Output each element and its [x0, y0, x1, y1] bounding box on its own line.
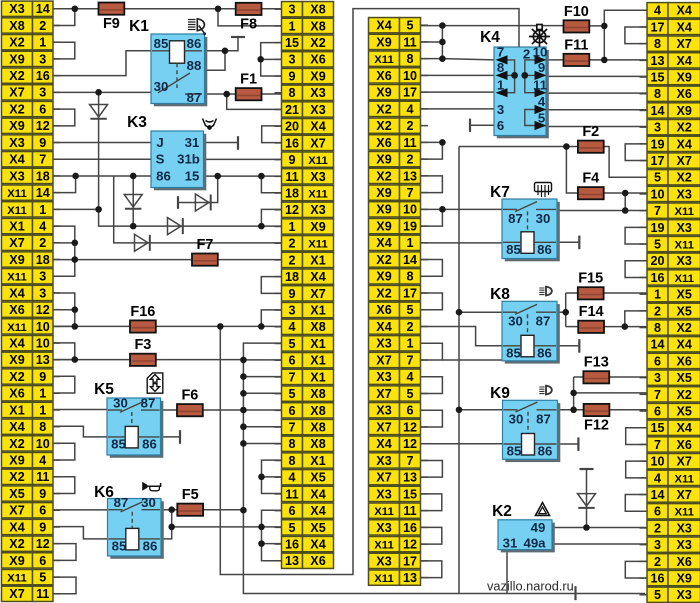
svg-text:X5: X5 [676, 404, 691, 418]
svg-text:19: 19 [650, 221, 664, 235]
svg-text:7: 7 [654, 438, 661, 452]
svg-text:K8: K8 [490, 286, 510, 303]
svg-text:X7: X7 [376, 420, 391, 434]
svg-text:X4: X4 [676, 338, 691, 352]
svg-text:9: 9 [39, 136, 46, 150]
svg-text:30: 30 [509, 411, 524, 426]
svg-text:87: 87 [114, 495, 129, 510]
svg-text:9: 9 [39, 487, 46, 501]
svg-text:X7: X7 [376, 387, 391, 401]
svg-text:2: 2 [39, 19, 46, 33]
svg-text:88: 88 [187, 58, 202, 73]
svg-text:3: 3 [39, 52, 46, 66]
svg-text:4: 4 [406, 370, 413, 384]
svg-text:X3: X3 [676, 521, 691, 535]
svg-text:X3: X3 [676, 221, 691, 235]
svg-text:2: 2 [406, 119, 413, 133]
svg-text:F3: F3 [134, 337, 151, 353]
svg-text:2: 2 [654, 304, 661, 318]
svg-text:8: 8 [654, 321, 661, 335]
svg-text:87: 87 [508, 211, 523, 226]
svg-text:7: 7 [654, 204, 661, 218]
svg-text:X7: X7 [9, 86, 24, 100]
svg-text:X9: X9 [676, 104, 691, 118]
svg-text:3: 3 [39, 86, 46, 100]
svg-text:10: 10 [403, 69, 417, 83]
svg-text:9: 9 [288, 153, 295, 167]
svg-text:F15: F15 [578, 271, 603, 287]
svg-text:X6: X6 [9, 303, 24, 317]
svg-text:X4: X4 [9, 286, 24, 300]
svg-text:X11: X11 [374, 506, 393, 518]
svg-text:X1: X1 [310, 354, 325, 368]
svg-text:6: 6 [497, 118, 504, 133]
svg-text:6: 6 [288, 404, 295, 418]
svg-text:13: 13 [403, 471, 417, 485]
svg-text:X4: X4 [376, 236, 391, 250]
svg-text:85: 85 [506, 242, 521, 257]
svg-text:X11: X11 [7, 272, 26, 284]
svg-text:X2: X2 [676, 121, 691, 135]
svg-text:6: 6 [39, 554, 46, 568]
svg-text:8: 8 [654, 87, 661, 101]
svg-text:5: 5 [406, 303, 413, 317]
svg-text:15: 15 [185, 169, 200, 184]
svg-text:X11: X11 [7, 573, 26, 585]
svg-text:85: 85 [112, 538, 127, 553]
svg-text:X3: X3 [376, 337, 391, 351]
svg-text:5: 5 [654, 171, 661, 185]
svg-text:6: 6 [39, 102, 46, 116]
svg-text:X2: X2 [9, 102, 24, 116]
svg-text:49a: 49a [523, 535, 546, 550]
svg-text:X9: X9 [676, 70, 691, 84]
svg-text:8: 8 [654, 37, 661, 51]
svg-text:8: 8 [39, 420, 46, 434]
svg-text:X9: X9 [376, 219, 391, 233]
svg-text:2: 2 [288, 253, 295, 267]
svg-text:5: 5 [654, 237, 661, 251]
svg-text:30: 30 [154, 79, 169, 94]
svg-text:X7: X7 [310, 136, 325, 150]
svg-text:X6: X6 [376, 136, 391, 150]
svg-text:X4: X4 [310, 487, 325, 501]
svg-text:X11: X11 [7, 188, 26, 200]
svg-text:1: 1 [288, 220, 295, 234]
svg-text:20: 20 [650, 254, 664, 268]
svg-text:5: 5 [288, 387, 295, 401]
svg-text:X3: X3 [376, 487, 391, 501]
svg-text:1: 1 [39, 387, 46, 401]
svg-text:X3: X3 [310, 170, 325, 184]
svg-text:6: 6 [288, 354, 295, 368]
svg-text:X1: X1 [310, 253, 325, 267]
svg-text:5: 5 [538, 110, 545, 125]
svg-text:14: 14 [36, 186, 50, 200]
svg-text:X3: X3 [9, 169, 24, 183]
svg-text:X4: X4 [676, 4, 691, 18]
svg-text:X7: X7 [376, 471, 391, 485]
svg-text:9: 9 [39, 520, 46, 534]
svg-text:1: 1 [497, 77, 504, 92]
svg-text:3: 3 [288, 3, 295, 17]
svg-text:1: 1 [39, 403, 46, 417]
svg-text:86: 86 [143, 538, 158, 553]
svg-text:X2: X2 [376, 102, 391, 116]
svg-text:6: 6 [288, 504, 295, 518]
svg-text:X11: X11 [674, 206, 693, 218]
svg-text:X6: X6 [676, 87, 691, 101]
svg-text:F4: F4 [582, 171, 599, 187]
svg-text:6: 6 [654, 505, 661, 519]
svg-text:86: 86 [538, 444, 553, 459]
svg-text:87: 87 [536, 411, 551, 426]
svg-text:F6: F6 [181, 388, 198, 404]
svg-text:X3: X3 [310, 103, 325, 117]
svg-text:X9: X9 [9, 454, 24, 468]
svg-text:87: 87 [536, 314, 551, 329]
svg-text:13: 13 [285, 554, 299, 568]
svg-text:12: 12 [403, 420, 417, 434]
svg-text:12: 12 [36, 537, 50, 551]
svg-text:5: 5 [288, 337, 295, 351]
svg-text:20: 20 [285, 120, 299, 134]
svg-text:14: 14 [650, 338, 664, 352]
svg-text:13: 13 [36, 353, 50, 367]
svg-text:12: 12 [285, 203, 299, 217]
svg-text:17: 17 [403, 86, 417, 100]
svg-text:7: 7 [497, 45, 504, 60]
svg-text:F14: F14 [579, 304, 604, 320]
svg-text:X3: X3 [310, 86, 325, 100]
svg-text:13: 13 [650, 54, 664, 68]
svg-text:S: S [156, 152, 165, 167]
svg-text:X8: X8 [310, 3, 325, 17]
svg-text:4: 4 [288, 471, 295, 485]
svg-text:X9: X9 [376, 270, 391, 284]
svg-text:X2: X2 [9, 537, 24, 551]
svg-text:85: 85 [154, 36, 169, 51]
svg-text:X9: X9 [9, 52, 24, 66]
svg-text:X2: X2 [376, 253, 391, 267]
svg-text:12: 12 [36, 119, 50, 133]
svg-text:11: 11 [285, 487, 298, 501]
svg-text:15: 15 [650, 421, 664, 435]
svg-text:F12: F12 [584, 418, 609, 434]
svg-text:X5: X5 [676, 371, 691, 385]
svg-text:11: 11 [285, 170, 298, 184]
svg-text:18: 18 [285, 270, 299, 284]
svg-text:10: 10 [36, 437, 50, 451]
svg-text:14: 14 [403, 253, 417, 267]
svg-text:X6: X6 [676, 555, 691, 569]
svg-text:16: 16 [285, 136, 299, 150]
svg-text:12: 12 [36, 303, 50, 317]
svg-text:X4: X4 [310, 537, 325, 551]
svg-text:F5: F5 [182, 487, 199, 503]
svg-text:F9: F9 [103, 16, 120, 32]
svg-text:X11: X11 [308, 188, 327, 200]
svg-text:X6: X6 [9, 387, 24, 401]
svg-text:14: 14 [650, 488, 664, 502]
svg-text:14: 14 [36, 2, 50, 16]
svg-text:K6: K6 [94, 484, 114, 501]
svg-text:87: 87 [141, 396, 156, 411]
svg-text:X7: X7 [676, 488, 691, 502]
svg-text:X4: X4 [676, 54, 691, 68]
svg-text:49: 49 [531, 520, 546, 535]
svg-text:16: 16 [36, 69, 50, 83]
svg-text:X5: X5 [9, 487, 24, 501]
svg-text:X5: X5 [676, 288, 691, 302]
svg-text:X5: X5 [676, 304, 691, 318]
svg-text:2: 2 [406, 320, 413, 334]
svg-text:X11: X11 [374, 54, 393, 66]
svg-text:17: 17 [650, 20, 664, 34]
svg-text:5: 5 [406, 387, 413, 401]
svg-text:8: 8 [406, 52, 413, 66]
svg-text:19: 19 [403, 219, 417, 233]
svg-text:3: 3 [497, 102, 504, 117]
svg-text:6: 6 [39, 504, 46, 518]
svg-text:1: 1 [406, 236, 413, 250]
svg-text:X2: X2 [676, 388, 691, 402]
svg-text:11: 11 [36, 587, 49, 601]
svg-text:17: 17 [403, 286, 417, 300]
svg-text:16: 16 [403, 521, 417, 535]
svg-text:85: 85 [507, 444, 522, 459]
svg-text:7: 7 [654, 388, 661, 402]
svg-text:86: 86 [142, 436, 157, 451]
svg-text:F2: F2 [582, 124, 599, 140]
svg-text:X2: X2 [9, 437, 24, 451]
svg-text:2: 2 [406, 153, 413, 167]
svg-text:30: 30 [508, 314, 523, 329]
svg-text:14: 14 [650, 104, 664, 118]
svg-text:21: 21 [285, 103, 299, 117]
svg-text:X8: X8 [310, 19, 325, 33]
svg-text:10: 10 [650, 455, 664, 469]
svg-text:X11: X11 [7, 205, 26, 217]
svg-text:X8: X8 [9, 19, 24, 33]
svg-text:4: 4 [654, 471, 661, 485]
svg-text:86: 86 [156, 169, 171, 184]
svg-text:X7: X7 [676, 37, 691, 51]
svg-text:X1: X1 [310, 303, 325, 317]
svg-text:J: J [156, 135, 163, 150]
svg-text:X2: X2 [676, 321, 691, 335]
svg-text:X9: X9 [376, 186, 391, 200]
svg-text:3: 3 [39, 270, 46, 284]
svg-text:16: 16 [285, 537, 299, 551]
svg-text:X2: X2 [9, 470, 24, 484]
svg-text:X7: X7 [310, 287, 325, 301]
svg-text:85: 85 [506, 345, 521, 360]
svg-text:10: 10 [36, 336, 50, 350]
svg-text:X4: X4 [376, 19, 391, 33]
svg-text:F1: F1 [240, 72, 257, 88]
svg-text:8: 8 [406, 270, 413, 284]
svg-text:15: 15 [650, 70, 664, 84]
svg-text:12: 12 [403, 437, 417, 451]
svg-text:X2: X2 [376, 119, 391, 133]
svg-text:X7: X7 [9, 504, 24, 518]
svg-text:5: 5 [39, 571, 46, 585]
svg-text:3: 3 [288, 303, 295, 317]
svg-text:4: 4 [39, 454, 46, 468]
svg-text:4: 4 [538, 94, 546, 109]
svg-text:F8: F8 [240, 17, 257, 33]
svg-text:2: 2 [39, 236, 46, 250]
svg-text:X11: X11 [674, 273, 693, 285]
svg-text:X6: X6 [376, 303, 391, 317]
svg-text:5: 5 [288, 521, 295, 535]
svg-text:X2: X2 [9, 36, 24, 50]
svg-text:8: 8 [288, 437, 295, 451]
svg-text:X8: X8 [310, 404, 325, 418]
svg-text:6: 6 [654, 404, 661, 418]
svg-text:X4: X4 [310, 504, 325, 518]
svg-text:K4: K4 [480, 29, 500, 46]
svg-text:X8: X8 [310, 320, 325, 334]
svg-text:X6: X6 [676, 438, 691, 452]
svg-text:X9: X9 [9, 554, 24, 568]
svg-text:9: 9 [288, 69, 295, 83]
svg-text:30: 30 [536, 211, 551, 226]
svg-text:X6: X6 [676, 354, 691, 368]
svg-text:11: 11 [403, 136, 416, 150]
svg-text:1: 1 [654, 288, 661, 302]
svg-text:X9: X9 [376, 203, 391, 217]
svg-text:31: 31 [185, 135, 200, 150]
svg-text:X3: X3 [376, 404, 391, 418]
svg-text:X1: X1 [9, 219, 24, 233]
svg-text:X8: X8 [310, 387, 325, 401]
svg-text:7: 7 [288, 370, 295, 384]
svg-text:10: 10 [650, 187, 664, 201]
svg-text:F7: F7 [196, 237, 213, 253]
svg-text:X9: X9 [9, 253, 24, 267]
svg-text:X4: X4 [9, 336, 24, 350]
svg-text:7: 7 [406, 353, 413, 367]
svg-text:86: 86 [187, 36, 202, 51]
svg-text:13: 13 [403, 571, 417, 585]
svg-text:7: 7 [39, 153, 46, 167]
svg-text:5: 5 [406, 19, 413, 33]
svg-text:vazillo.narod.ru: vazillo.narod.ru [487, 579, 574, 594]
svg-text:X2: X2 [9, 69, 24, 83]
svg-text:X11: X11 [7, 322, 26, 334]
svg-text:K5: K5 [94, 381, 114, 398]
svg-text:17: 17 [650, 154, 664, 168]
svg-text:8: 8 [288, 86, 295, 100]
svg-text:X6: X6 [310, 53, 325, 67]
svg-text:X7: X7 [376, 353, 391, 367]
svg-text:X4: X4 [9, 520, 24, 534]
svg-text:X4: X4 [9, 420, 24, 434]
svg-text:30: 30 [113, 396, 128, 411]
svg-text:9: 9 [288, 287, 295, 301]
svg-text:X3: X3 [676, 538, 691, 552]
svg-text:6: 6 [654, 354, 661, 368]
svg-text:85: 85 [111, 436, 126, 451]
svg-text:X9: X9 [9, 119, 24, 133]
svg-text:X2: X2 [676, 171, 691, 185]
svg-text:87: 87 [187, 90, 202, 105]
svg-text:F13: F13 [584, 355, 609, 371]
svg-text:X11: X11 [674, 239, 693, 251]
svg-text:X4: X4 [376, 437, 391, 451]
svg-text:1: 1 [288, 19, 295, 33]
svg-text:X4: X4 [9, 153, 24, 167]
svg-text:13: 13 [403, 169, 417, 183]
svg-text:X5: X5 [310, 471, 325, 485]
svg-text:X11: X11 [308, 239, 327, 251]
svg-text:X7: X7 [676, 455, 691, 469]
svg-text:X3: X3 [376, 370, 391, 384]
svg-text:X3: X3 [676, 254, 691, 268]
svg-text:X4: X4 [376, 320, 391, 334]
svg-text:X9: X9 [310, 69, 325, 83]
svg-text:4: 4 [406, 102, 413, 116]
svg-text:X9: X9 [310, 220, 325, 234]
svg-text:X9: X9 [9, 353, 24, 367]
svg-text:X2: X2 [376, 169, 391, 183]
svg-text:31: 31 [503, 535, 518, 550]
svg-text:6: 6 [406, 404, 413, 418]
svg-text:X9: X9 [676, 571, 691, 585]
svg-text:X2: X2 [376, 286, 391, 300]
svg-text:X8: X8 [310, 420, 325, 434]
svg-text:X3: X3 [676, 588, 691, 602]
svg-text:11: 11 [403, 504, 416, 518]
svg-text:X4: X4 [676, 137, 691, 151]
svg-text:X3: X3 [376, 554, 391, 568]
svg-text:9: 9 [39, 370, 46, 384]
svg-text:18: 18 [36, 253, 50, 267]
svg-text:2: 2 [654, 521, 661, 535]
svg-text:X1: X1 [310, 337, 325, 351]
svg-text:11: 11 [533, 77, 547, 92]
svg-text:9: 9 [538, 60, 545, 75]
svg-text:3: 3 [654, 538, 661, 552]
svg-text:X7: X7 [9, 236, 24, 250]
svg-text:X11: X11 [308, 155, 327, 167]
svg-text:16: 16 [650, 271, 664, 285]
svg-text:X7: X7 [9, 587, 24, 601]
svg-text:15: 15 [403, 487, 417, 501]
svg-text:15: 15 [285, 36, 299, 50]
svg-text:X3: X3 [310, 203, 325, 217]
svg-text:1: 1 [406, 337, 413, 351]
svg-text:3: 3 [288, 53, 295, 67]
svg-text:K1: K1 [129, 18, 149, 35]
svg-text:16: 16 [650, 571, 664, 585]
svg-text:X4: X4 [676, 421, 691, 435]
svg-text:8: 8 [497, 60, 504, 75]
svg-text:7: 7 [406, 454, 413, 468]
svg-text:10: 10 [403, 203, 417, 217]
svg-text:X2: X2 [310, 36, 325, 50]
svg-text:X6: X6 [310, 554, 325, 568]
svg-text:17: 17 [403, 554, 417, 568]
svg-text:X3: X3 [676, 187, 691, 201]
svg-text:F10: F10 [564, 4, 589, 20]
svg-text:K2: K2 [492, 503, 512, 520]
svg-text:X4: X4 [676, 20, 691, 34]
svg-text:K3: K3 [127, 114, 147, 131]
svg-text:X3: X3 [376, 521, 391, 535]
